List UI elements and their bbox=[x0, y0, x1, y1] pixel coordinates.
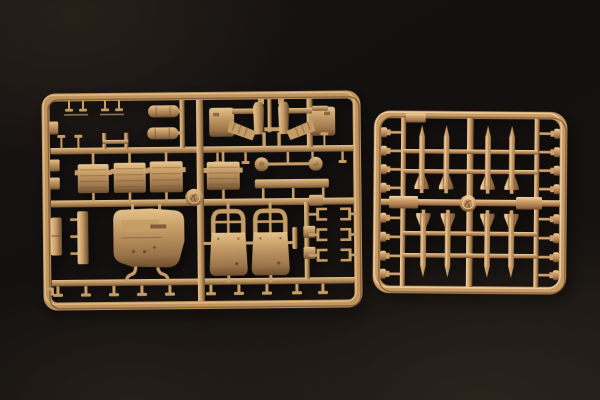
bolt-pin-part bbox=[540, 129, 561, 139]
bottom-post bbox=[295, 284, 298, 292]
cockpit-frame-halves bbox=[209, 98, 335, 147]
bolt-pin-part bbox=[538, 270, 559, 280]
hanging-post bbox=[311, 152, 313, 161]
post-foot bbox=[109, 293, 119, 296]
bottom-post bbox=[265, 284, 268, 292]
post-cap bbox=[339, 160, 347, 163]
pin-cap bbox=[65, 109, 73, 112]
standing-post bbox=[60, 137, 62, 148]
bolt-pin-part bbox=[539, 214, 560, 224]
right-sprue bbox=[374, 112, 566, 293]
runner-pad-right bbox=[516, 197, 542, 210]
hanging-pin bbox=[118, 100, 120, 109]
standing-post bbox=[323, 135, 325, 146]
bolt-pin-part bbox=[381, 146, 402, 156]
seat-link-stub bbox=[245, 241, 253, 244]
thin-rod-part bbox=[64, 114, 88, 116]
hanging-post bbox=[341, 151, 343, 160]
missile-half-part bbox=[504, 210, 519, 278]
post-foot bbox=[206, 292, 216, 295]
missile-half-part bbox=[504, 126, 519, 194]
post-foot bbox=[234, 292, 244, 295]
bolt-pin-part bbox=[539, 233, 560, 243]
post-foot bbox=[137, 293, 147, 296]
standing-post bbox=[77, 137, 79, 148]
left-sprue bbox=[43, 92, 361, 309]
post-foot bbox=[292, 291, 302, 294]
bottom-post bbox=[321, 284, 324, 292]
pin-cap bbox=[79, 109, 87, 112]
bolt-pin-part bbox=[380, 251, 401, 261]
ribbed-panel-part bbox=[75, 153, 113, 203]
pin-cap bbox=[115, 108, 123, 111]
missile-half-part bbox=[439, 125, 454, 193]
hanging-pin bbox=[68, 100, 70, 109]
ribbed-panel-part bbox=[203, 152, 243, 200]
post-foot bbox=[53, 294, 63, 297]
sprue-photo bbox=[0, 0, 600, 400]
bolt-pin-part bbox=[380, 232, 401, 242]
photo-canvas: Two tan injection-molded plastic model k… bbox=[0, 0, 600, 400]
hanging-pin bbox=[104, 100, 106, 109]
bottom-post bbox=[140, 286, 143, 294]
pin-cap bbox=[101, 108, 109, 111]
hanging-post bbox=[216, 153, 218, 162]
bottom-post bbox=[168, 285, 171, 293]
seat-back-panel bbox=[203, 203, 248, 283]
bolt-pin-part bbox=[381, 164, 402, 174]
strip-part bbox=[70, 211, 89, 264]
runner-pad-left bbox=[389, 196, 418, 209]
bolt-pin-part bbox=[539, 147, 560, 157]
hanging-post bbox=[244, 153, 246, 162]
bolt-pin-part bbox=[539, 184, 560, 194]
missile-half-part bbox=[414, 125, 429, 193]
bolt-pin-part bbox=[539, 166, 560, 176]
bracket-clip-part bbox=[309, 208, 328, 221]
hanging-pin bbox=[82, 100, 84, 109]
bolt-pin-part bbox=[380, 269, 401, 279]
bottom-post bbox=[112, 286, 115, 294]
bolt-pin-part bbox=[538, 252, 559, 262]
cylinder-tank-parts bbox=[147, 105, 182, 139]
post-foot bbox=[81, 293, 91, 296]
frame-edge-clips bbox=[49, 121, 62, 255]
frame-tab-pad bbox=[406, 113, 426, 122]
thin-rod-part bbox=[100, 114, 124, 116]
bolt-pin-part bbox=[380, 213, 401, 223]
ribbed-panel-part bbox=[111, 153, 150, 203]
bolt-pin-part bbox=[381, 127, 402, 137]
ribbed-panel-part bbox=[147, 152, 187, 202]
bottom-post bbox=[84, 286, 87, 294]
bottom-post bbox=[56, 286, 59, 294]
post-foot bbox=[165, 292, 175, 295]
bottom-post bbox=[237, 285, 240, 293]
staple-part bbox=[102, 133, 128, 149]
right-sprue-logo-medallion bbox=[460, 195, 477, 212]
post-foot bbox=[318, 291, 328, 294]
post-cap bbox=[242, 161, 250, 164]
bolt-pin-part bbox=[381, 183, 402, 193]
cab-floor-panel bbox=[113, 203, 185, 283]
bottom-post bbox=[209, 285, 212, 293]
missile-half-part bbox=[480, 210, 495, 278]
post-cap bbox=[309, 160, 317, 163]
missile-half-part bbox=[440, 210, 455, 278]
missile-half-part bbox=[416, 210, 431, 278]
post-foot bbox=[262, 291, 272, 294]
missile-half-part bbox=[480, 126, 495, 194]
